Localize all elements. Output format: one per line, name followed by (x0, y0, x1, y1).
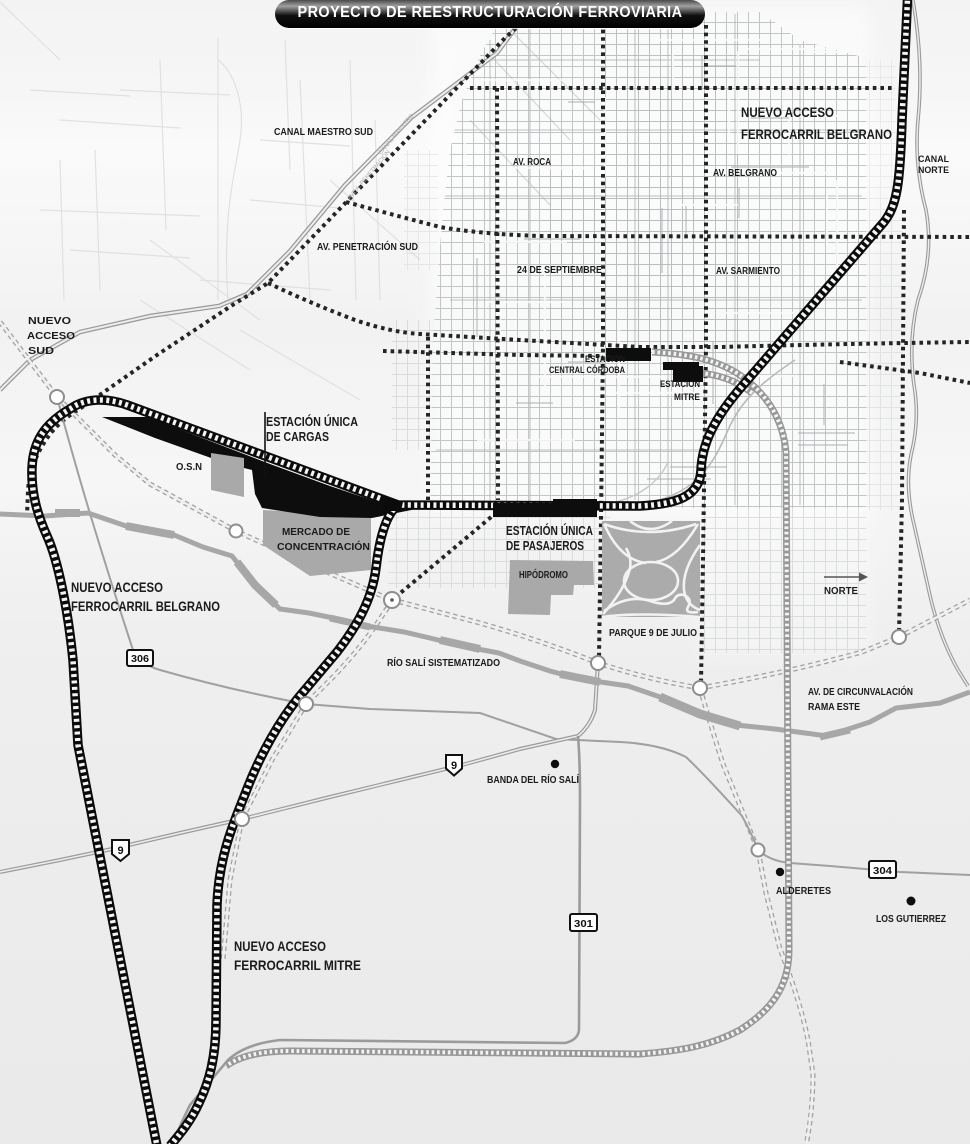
svg-text:NUEVO ACCESO: NUEVO ACCESO (71, 579, 163, 595)
svg-text:ESTACIÓN: ESTACIÓN (660, 378, 700, 390)
svg-text:ACCESO: ACCESO (27, 330, 75, 342)
svg-text:AV. PENETRACIÓN SUD: AV. PENETRACIÓN SUD (317, 240, 418, 253)
svg-text:FERROCARRIL MITRE: FERROCARRIL MITRE (234, 957, 361, 973)
svg-text:CANAL: CANAL (918, 154, 949, 165)
svg-text:9: 9 (451, 760, 457, 772)
svg-text:FERROCARRIL BELGRANO: FERROCARRIL BELGRANO (741, 126, 892, 142)
svg-text:ESTACIÓN: ESTACIÓN (585, 353, 625, 365)
svg-text:NUEVO ACCESO: NUEVO ACCESO (234, 938, 326, 954)
svg-text:DE PASAJEROS: DE PASAJEROS (506, 538, 584, 553)
svg-text:NUEVO ACCESO: NUEVO ACCESO (741, 104, 834, 120)
svg-text:AV. SARMIENTO: AV. SARMIENTO (716, 266, 780, 277)
svg-text:LOS GUTIERREZ: LOS GUTIERREZ (876, 914, 946, 925)
svg-text:AV. DE CIRCUNVALACIÓN: AV. DE CIRCUNVALACIÓN (808, 685, 913, 698)
svg-text:HIPÓDROMO: HIPÓDROMO (519, 568, 568, 581)
svg-text:CENTRAL CÓRDOBA: CENTRAL CÓRDOBA (549, 364, 625, 376)
svg-text:CANAL MAESTRO SUD: CANAL MAESTRO SUD (274, 126, 373, 138)
svg-text:301: 301 (574, 918, 593, 930)
svg-text:O.S.N: O.S.N (176, 461, 202, 473)
svg-text:RÍO SALÍ SISTEMATIZADO: RÍO SALÍ SISTEMATIZADO (387, 656, 500, 669)
svg-text:AV. BELGRANO: AV. BELGRANO (713, 168, 777, 179)
svg-text:ALDERETES: ALDERETES (776, 886, 831, 897)
svg-text:304: 304 (873, 865, 892, 877)
svg-text:ESTACIÓN ÚNICA: ESTACIÓN ÚNICA (506, 523, 593, 538)
svg-text:NORTE: NORTE (918, 165, 949, 176)
svg-text:MERCADO DE: MERCADO DE (282, 526, 350, 538)
svg-text:MITRE: MITRE (674, 392, 700, 403)
svg-text:DE CARGAS: DE CARGAS (266, 430, 329, 444)
svg-text:CONCENTRACIÓN: CONCENTRACIÓN (277, 540, 370, 553)
svg-text:9: 9 (117, 845, 123, 857)
svg-text:NUEVO: NUEVO (28, 315, 71, 327)
svg-text:RAMA ESTE: RAMA ESTE (808, 701, 860, 713)
svg-text:NORTE: NORTE (824, 586, 858, 597)
svg-text:AV. ROCA: AV. ROCA (513, 157, 551, 168)
svg-text:FERROCARRIL BELGRANO: FERROCARRIL BELGRANO (71, 598, 220, 614)
svg-text:ESTACIÓN ÚNICA: ESTACIÓN ÚNICA (266, 414, 358, 429)
svg-text:BANDA DEL RÍO SALÍ: BANDA DEL RÍO SALÍ (487, 773, 579, 786)
svg-text:PARQUE 9 DE JULIO: PARQUE 9 DE JULIO (609, 628, 697, 639)
svg-text:SUD: SUD (28, 345, 54, 357)
svg-text:306: 306 (131, 654, 149, 665)
svg-text:24 DE SEPTIEMBRE: 24 DE SEPTIEMBRE (517, 264, 602, 276)
